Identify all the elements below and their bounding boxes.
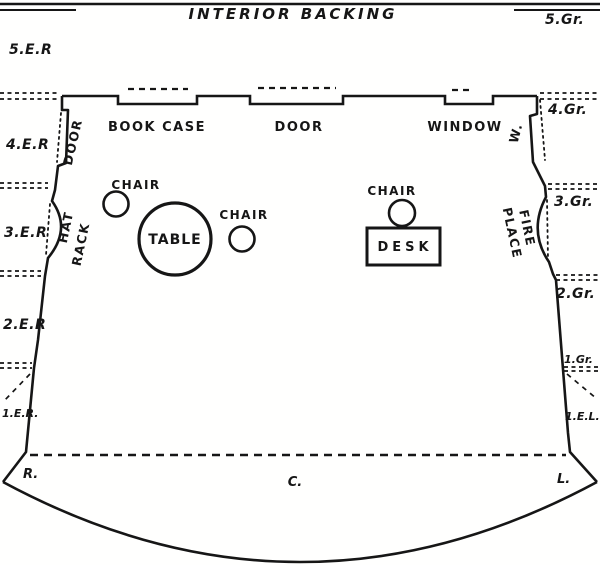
left-wall-return-dashes: [0, 93, 58, 99]
wing-dashes-1gr: [564, 367, 600, 371]
window-label: WINDOW: [427, 120, 502, 135]
stage-plan-canvas: INTERIOR BACKING 5.Gr. 5.E.R 4.E.R 3.E.R…: [0, 0, 600, 565]
right-window-opening-dots: [540, 100, 545, 160]
wing-dashes-3gr: [548, 184, 600, 189]
mark-1gr: 1.Gr.: [564, 353, 593, 366]
desk-label: DESK: [377, 240, 432, 255]
stage-ground-plan: INTERIOR BACKING 5.Gr. 5.E.R 4.E.R 3.E.R…: [0, 0, 600, 565]
mark-3gr: 3.Gr.: [554, 194, 593, 210]
wing-diagonal-left: [4, 374, 30, 401]
mark-3er: 3.E.R: [4, 225, 47, 241]
mark-5er: 5.E.R: [9, 42, 52, 58]
chair-left-circle: [104, 192, 129, 217]
footline-mark-right: R.: [23, 467, 38, 482]
mark-1el: 1.E.L.: [565, 410, 600, 423]
plan-title: INTERIOR BACKING: [189, 5, 398, 23]
wing-dashes-3er: [0, 183, 48, 188]
mark-2gr: 2.Gr.: [556, 286, 595, 302]
back-wall: [62, 96, 537, 104]
left-door-label: DOOR: [60, 117, 85, 166]
back-door-label: DOOR: [275, 120, 324, 135]
fireplace-chord-dots: [547, 200, 548, 259]
wing-dashes-2gr: [556, 275, 600, 280]
mark-2er: 2.E.R: [3, 317, 46, 333]
left-door-opening-dots: [57, 113, 61, 162]
left-wall: [3, 96, 68, 482]
footline-mark-center: C.: [288, 475, 302, 490]
chair-right-label: CHAIR: [367, 184, 416, 198]
wing-dashes-2er: [0, 271, 41, 276]
mark-1er: 1.E.R.: [2, 407, 38, 420]
footline-mark-left: L.: [557, 472, 570, 487]
mark-5gr: 5.Gr.: [545, 12, 584, 28]
right-wall-return-dashes: [540, 93, 600, 99]
mark-4er: 4.E.R: [5, 137, 49, 153]
chair-center-label: CHAIR: [219, 208, 268, 222]
wing-dashes-1er: [0, 363, 32, 368]
table-label: TABLE: [148, 232, 201, 248]
mark-4gr: 4.Gr.: [547, 102, 587, 118]
bookcase-label: BOOK CASE: [108, 120, 206, 135]
chair-center-circle: [230, 227, 255, 252]
apron-curve: [3, 482, 597, 562]
right-window-label: W.: [506, 121, 526, 145]
chair-left-label: CHAIR: [111, 178, 160, 192]
wing-diagonal-right: [567, 374, 597, 399]
chair-right-circle: [389, 200, 415, 226]
